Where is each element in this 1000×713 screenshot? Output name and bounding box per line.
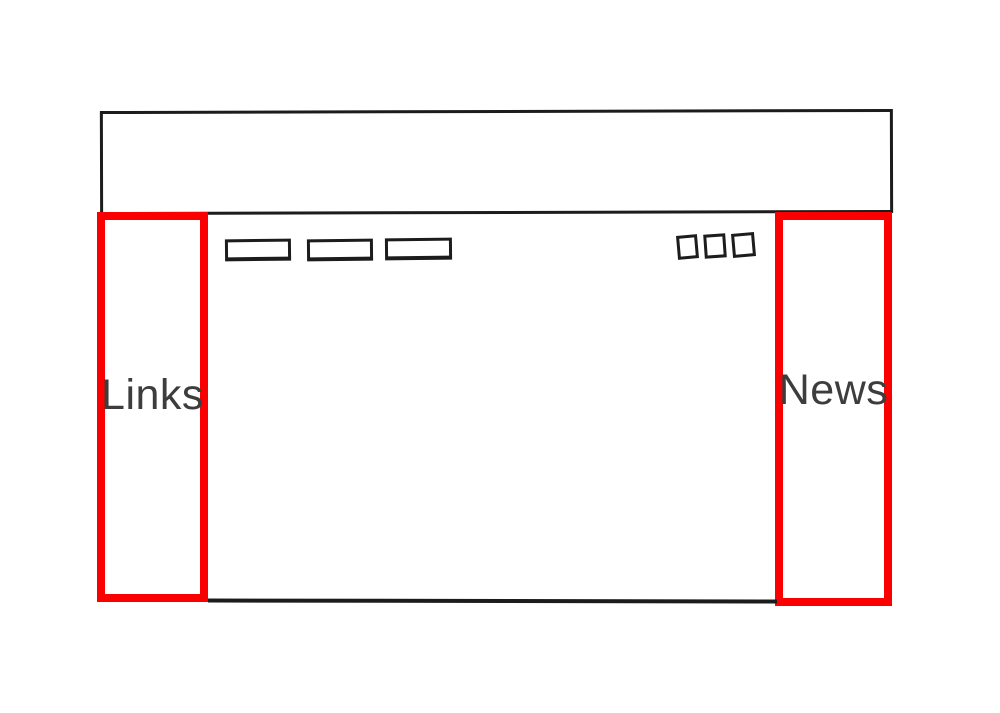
icon-square-placeholder-3 — [731, 232, 756, 258]
nav-button-placeholder-3 — [385, 238, 452, 261]
content-bottom-border — [208, 599, 777, 604]
header-region — [100, 109, 893, 215]
left-sidebar-label: Links — [97, 374, 208, 417]
icon-square-placeholder-2 — [703, 233, 727, 258]
wireframe-canvas: Links News — [0, 0, 1000, 713]
nav-button-placeholder-2 — [307, 239, 373, 262]
icon-square-placeholder-1 — [676, 234, 699, 260]
nav-button-placeholder-1 — [225, 239, 291, 262]
right-sidebar-label: News — [775, 369, 892, 412]
